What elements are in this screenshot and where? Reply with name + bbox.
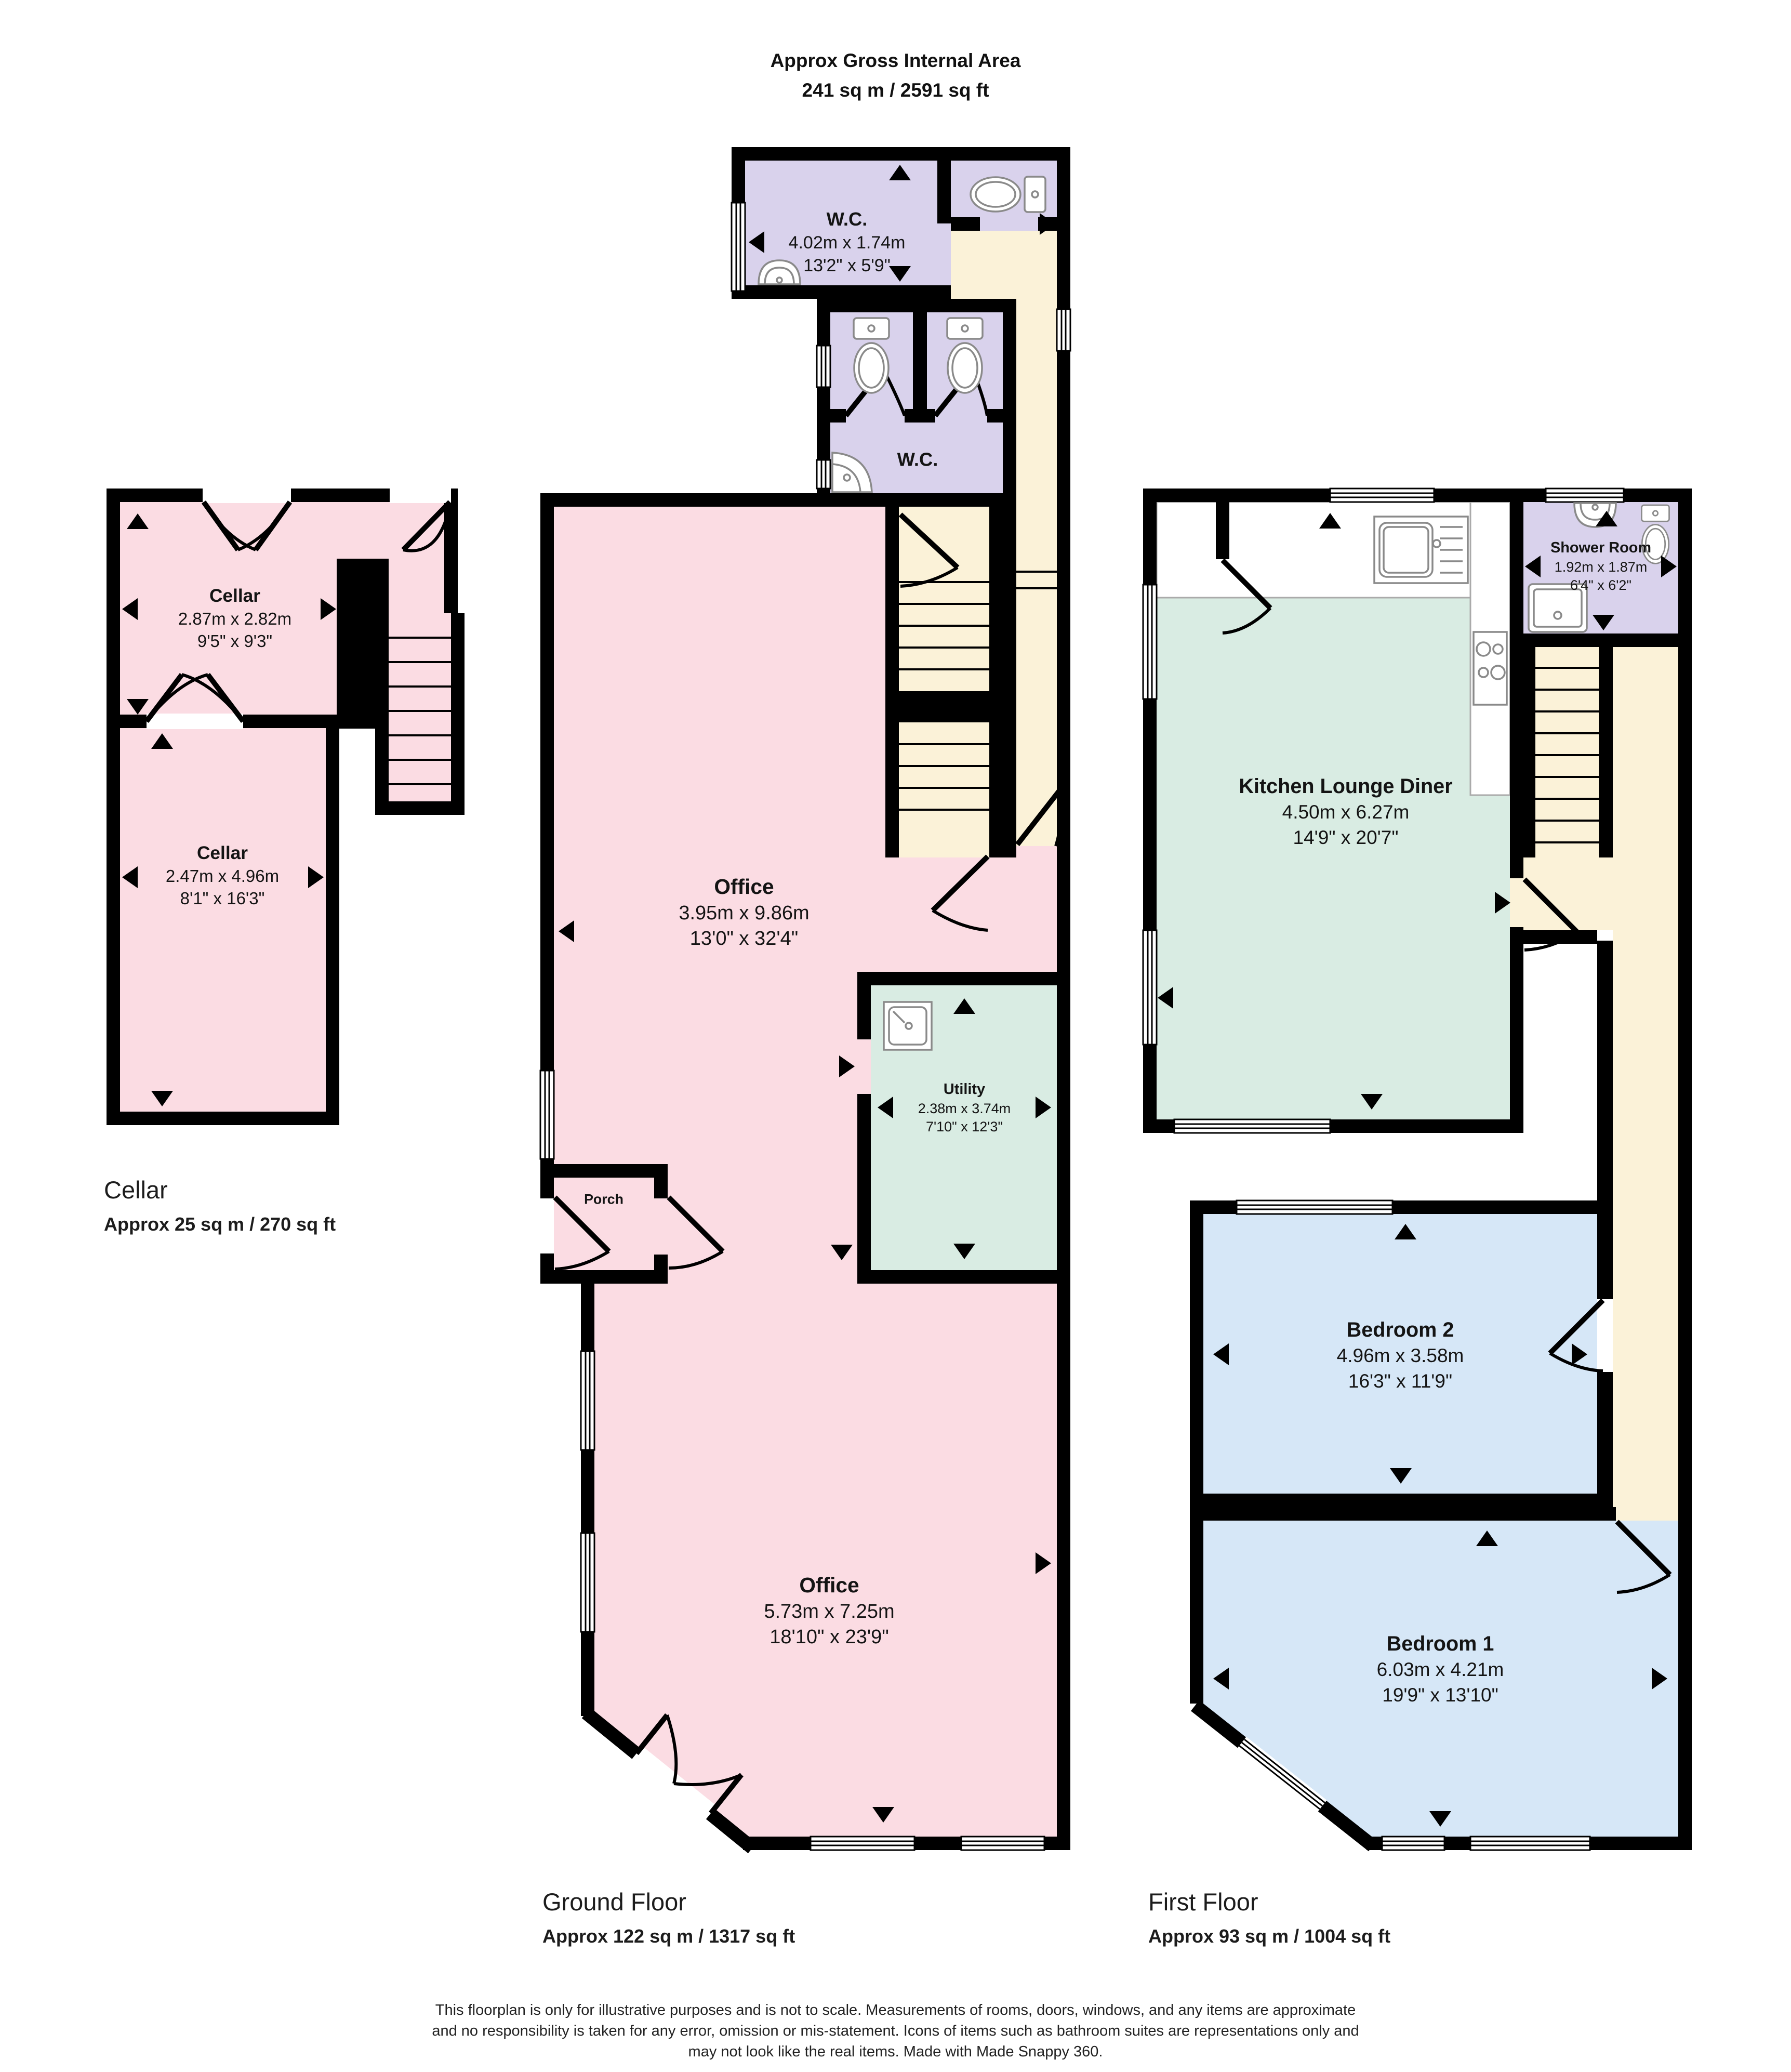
room-dim-ft: 19'9" x 13'10" [1377,1683,1504,1708]
room-dim-ft: 9'5" x 9'3" [178,630,291,653]
toilet-icon [947,318,983,393]
floorplan-graphic [0,0,1791,2072]
room-dim-ft: 14'9" x 20'7" [1239,825,1452,850]
room-name: W.C. [789,207,906,231]
disclaimer: This floorplan is only for illustrative … [432,2000,1359,2062]
room-label-office-lower: Office 5.73m x 7.25m 18'10" x 23'9" [764,1572,894,1651]
room-name: Utility [918,1080,1011,1100]
room-dim-m: 6.03m x 4.21m [1377,1658,1504,1683]
room-label-cellar-upper: Cellar 2.87m x 2.82m 9'5" x 9'3" [178,584,291,653]
room-label-bedroom-2: Bedroom 2 4.96m x 3.58m 16'3" x 11'9" [1337,1317,1464,1394]
room-dim-ft: 13'2" x 5'9" [789,255,906,278]
kitchen-sink-icon [1374,517,1468,583]
room-label-cellar-lower: Cellar 2.47m x 4.96m 8'1" x 16'3" [166,841,279,910]
room-dim-ft: 13'0" x 32'4" [679,926,809,952]
room-label-wc-lower: W.C. [897,447,938,471]
disclaimer-line: This floorplan is only for illustrative … [432,2000,1359,2021]
room-dim-m: 4.02m x 1.74m [789,231,906,254]
room-dim-m: 2.47m x 4.96m [166,865,279,888]
floor-area: Approx 93 sq m / 1004 sq ft [1148,1925,1390,1947]
room-name: Porch [584,1191,623,1209]
room-dim-m: 2.87m x 2.82m [178,608,291,630]
utility-sink-icon [884,1002,932,1050]
room-dim-m: 4.50m x 6.27m [1239,800,1452,825]
room-label-porch: Porch [584,1191,623,1209]
room-name: Office [679,873,809,901]
room-dim-ft: 7'10" x 12'3" [918,1118,1011,1136]
room-label-wc-top: W.C. 4.02m x 1.74m 13'2" x 5'9" [789,207,906,278]
floor-area: Approx 25 sq m / 270 sq ft [104,1213,336,1235]
cellar-caption: Cellar Approx 25 sq m / 270 sq ft [104,1176,336,1235]
disclaimer-line: may not look like the real items. Made w… [432,2041,1359,2062]
room-dim-m: 3.95m x 9.86m [679,901,809,926]
room-dim-ft: 8'1" x 16'3" [166,888,279,910]
room-name: Cellar [178,584,291,608]
first-floor-caption: First Floor Approx 93 sq m / 1004 sq ft [1148,1888,1390,1947]
room-name: Cellar [166,841,279,865]
room-dim-m: 4.96m x 3.58m [1337,1344,1464,1369]
toilet-icon [971,177,1045,212]
room-dim-m: 1.92m x 1.87m [1550,558,1651,576]
gross-area-value: 241 sq m / 2591 sq ft [771,75,1021,105]
room-name: Bedroom 1 [1377,1631,1504,1657]
floor-name: Ground Floor [542,1888,795,1916]
room-name: Office [764,1572,894,1599]
room-dim-ft: 6'4" x 6'2" [1550,576,1651,595]
room-dim-ft: 16'3" x 11'9" [1337,1369,1464,1394]
gross-area-title: Approx Gross Internal Area [771,46,1021,75]
room-label-kitchen-lounge-diner: Kitchen Lounge Diner 4.50m x 6.27m 14'9"… [1239,773,1452,850]
room-name: Shower Room [1550,538,1651,558]
room-label-bedroom-1: Bedroom 1 6.03m x 4.21m 19'9" x 13'10" [1377,1631,1504,1708]
room-dim-ft: 18'10" x 23'9" [764,1625,894,1650]
room-label-utility: Utility 2.38m x 3.74m 7'10" x 12'3" [918,1080,1011,1136]
room-dim-m: 5.73m x 7.25m [764,1599,894,1625]
toilet-icon [854,318,889,393]
floor-area: Approx 122 sq m / 1317 sq ft [542,1925,795,1947]
floor-name: First Floor [1148,1888,1390,1916]
room-name: Kitchen Lounge Diner [1239,773,1452,800]
cellar-plan [113,487,465,1118]
ground-floor-caption: Ground Floor Approx 122 sq m / 1317 sq f… [542,1888,795,1947]
floor-name: Cellar [104,1176,336,1204]
room-name: Bedroom 2 [1337,1317,1464,1343]
page-title: Approx Gross Internal Area 241 sq m / 25… [771,46,1021,105]
floorplan-page: Approx Gross Internal Area 241 sq m / 25… [0,0,1791,2072]
room-label-shower-room: Shower Room 1.92m x 1.87m 6'4" x 6'2" [1550,538,1651,595]
room-dim-m: 2.38m x 3.74m [918,1100,1011,1118]
hob-icon [1474,632,1507,705]
room-name: W.C. [897,447,938,471]
room-label-office-upper: Office 3.95m x 9.86m 13'0" x 32'4" [679,873,809,952]
disclaimer-line: and no responsibility is taken for any e… [432,2021,1359,2041]
